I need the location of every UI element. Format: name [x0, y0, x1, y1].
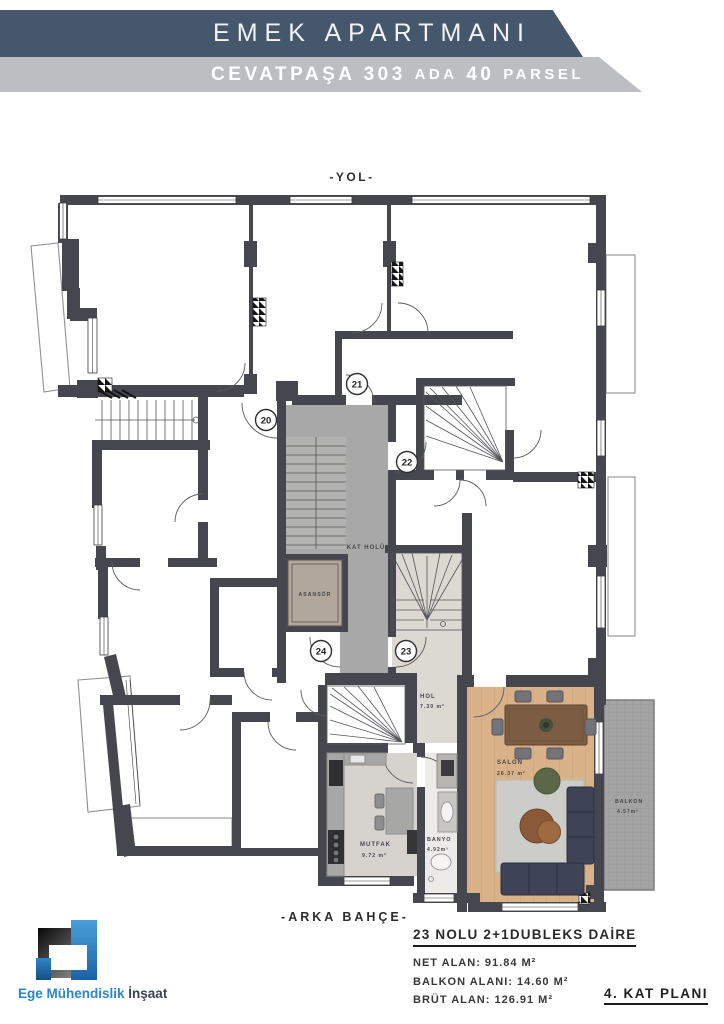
kat-holu-label: KAT HOLÜ — [347, 544, 386, 551]
window — [290, 197, 352, 204]
hol-area: 7.30 m² — [420, 704, 445, 710]
company-name-dark: İnşaat — [128, 986, 167, 1001]
window — [94, 505, 102, 545]
company-logo: Ege Mühendislik İnşaat — [18, 916, 198, 1001]
floor-plan: -YOL- -ARKA BAHÇE- — [0, 0, 724, 1024]
kitchen-island — [386, 788, 413, 834]
window — [597, 290, 605, 326]
door-number-22: 22 — [397, 452, 418, 473]
window — [98, 197, 236, 204]
mutfak-area: 9.72 m² — [362, 853, 387, 859]
window — [412, 197, 590, 204]
sofa-right — [567, 787, 594, 864]
window — [88, 318, 97, 373]
svg-text:22: 22 — [402, 458, 413, 469]
window — [424, 894, 454, 902]
svg-text:24: 24 — [316, 647, 327, 658]
island-chair — [375, 816, 384, 830]
apartment-title: 23 NOLU 2+1DUBLEKS DAİRE — [413, 927, 636, 947]
lower-staircase — [327, 686, 405, 744]
window — [344, 877, 390, 885]
salon-label: SALON — [497, 760, 523, 766]
window — [597, 576, 605, 628]
door-number-24: 24 — [311, 641, 332, 662]
hol-label: HOL — [420, 694, 436, 700]
armchair — [534, 768, 560, 794]
vanity — [438, 792, 457, 832]
fire-staircase — [95, 390, 199, 440]
stove — [328, 830, 344, 864]
dining-table — [505, 705, 587, 745]
street-label: -YOL- — [329, 170, 374, 184]
balcony-floor — [604, 700, 654, 890]
svg-text:20: 20 — [261, 416, 272, 427]
balkon-label: BALKON — [615, 799, 643, 805]
door-number-20: 20 — [256, 410, 277, 431]
window — [60, 203, 67, 239]
window — [502, 903, 578, 911]
mutfak-label: MUTFAK — [360, 842, 391, 848]
logo-square-white — [49, 945, 87, 970]
door-number-23: 23 — [396, 641, 417, 662]
washer — [437, 754, 457, 788]
balkon-area: 4.57m² — [617, 809, 639, 815]
sofa-bottom — [501, 863, 584, 895]
toilet — [431, 854, 451, 870]
door-number-21: 21 — [347, 374, 368, 395]
salon-area: 26.37 m² — [497, 771, 526, 777]
svg-text:23: 23 — [401, 647, 412, 658]
window — [597, 420, 605, 456]
elevator: ASANSÖR — [282, 554, 348, 632]
page: EMEK APARTMANI CEVATPAŞA 303 ADA 40 PARS… — [0, 0, 724, 1024]
window — [100, 617, 108, 655]
banyo-area: 4.92m² — [427, 847, 449, 853]
banyo-label: BANYO — [427, 837, 451, 843]
logo-mark-icon — [18, 916, 198, 980]
elevator-label: ASANSÖR — [299, 591, 332, 598]
net-area-line: NET ALAN: 91.84 M² — [413, 954, 718, 973]
salon-furniture — [492, 691, 596, 895]
oven — [329, 760, 343, 786]
company-name: Ege Mühendislik İnşaat — [18, 986, 198, 1001]
shaft-block — [407, 830, 417, 854]
sink — [350, 755, 365, 763]
svg-text:21: 21 — [352, 380, 363, 391]
floor-plan-label: 4. KAT PLANI — [604, 986, 708, 1005]
island-chair — [375, 794, 384, 808]
logo-square-blue-small — [36, 958, 51, 980]
garden-label: -ARKA BAHÇE- — [281, 910, 409, 924]
company-name-blue: Ege Mühendislik — [18, 986, 125, 1001]
